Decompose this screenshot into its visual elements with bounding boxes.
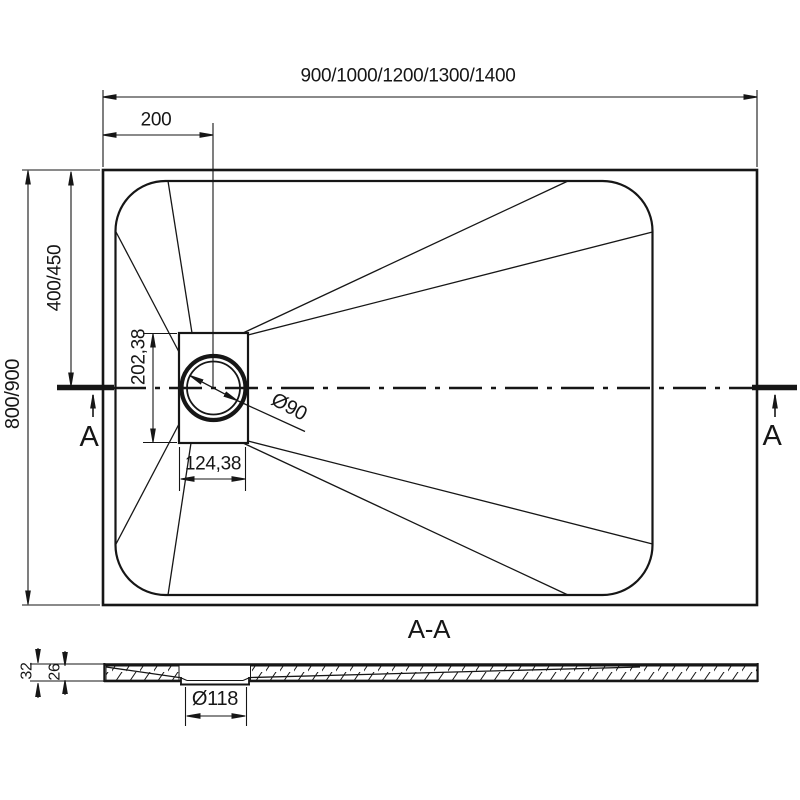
drain-center-label: 400/450 (45, 245, 66, 312)
drain-offset-label: 200 (141, 110, 172, 131)
drain-offset-dimension: 200 (103, 110, 213, 136)
drain-box-height-label: 202,38 (129, 329, 150, 385)
drain-box-height-dimension: 202,38 (129, 329, 178, 443)
drain-recess (179, 677, 251, 685)
section-marker-label: A (79, 421, 99, 453)
drain-box-width-label: 124,38 (185, 454, 241, 475)
section-view: A-A 32 26 (19, 614, 759, 726)
section-hatch-right (251, 666, 758, 680)
section-title: A-A (408, 614, 451, 644)
total-height-label: 32 (19, 662, 36, 680)
drain-center-dimension: 400/450 (45, 172, 72, 386)
technical-drawing-canvas: Ø90 A A 900/1000/1200/1300/1400 200 (0, 0, 800, 800)
length-dimension: 900/1000/1200/1300/1400 (103, 66, 757, 168)
slope-line (168, 181, 192, 333)
slope-line (243, 181, 568, 333)
slope-line (248, 232, 653, 335)
section-dimensions: 32 26 Ø118 (19, 648, 247, 726)
shower-tray-drawing: Ø90 A A 900/1000/1200/1300/1400 200 (0, 0, 800, 800)
drain-diameter-label: Ø90 (268, 389, 311, 426)
drain-box-width-dimension: 124,38 (180, 447, 246, 491)
base-height-label: 26 (47, 663, 64, 681)
section-marker-label: A (762, 420, 782, 452)
section-cut-marker-right: A (752, 388, 797, 453)
width-dimension-label: 800/900 (2, 359, 24, 429)
slope-line (248, 441, 653, 544)
length-dimension-label: 900/1000/1200/1300/1400 (301, 66, 516, 87)
recess-diameter-label: Ø118 (192, 688, 238, 710)
slope-line (243, 443, 568, 595)
top-view: Ø90 A A (57, 123, 797, 605)
section-cut-marker-left: A (57, 388, 114, 454)
